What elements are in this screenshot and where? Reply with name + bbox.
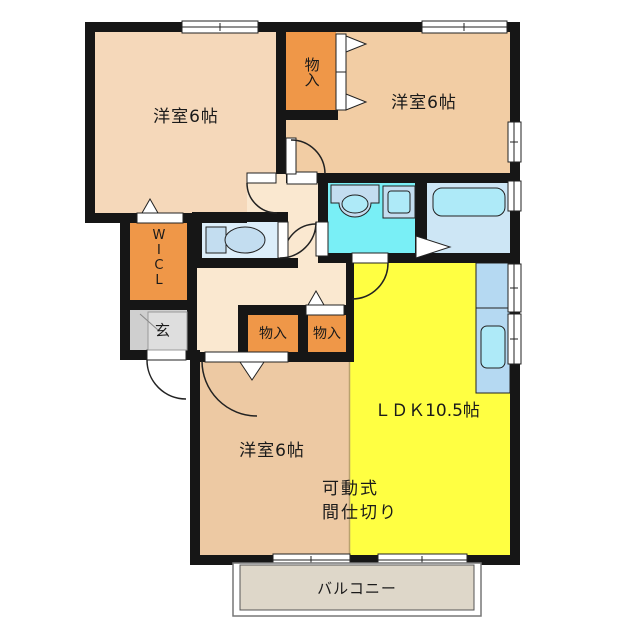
wall-closet-top-bottom xyxy=(286,110,338,120)
label-partition-line1: 可動式 xyxy=(322,480,379,500)
bathtub-icon xyxy=(433,188,505,216)
entrance-door-gap xyxy=(147,350,186,360)
sliding-door-panel xyxy=(336,72,346,110)
wall-room-divider xyxy=(276,22,286,174)
wall-left-upper xyxy=(85,22,95,223)
door-panel xyxy=(278,222,288,258)
door-gap xyxy=(247,173,276,183)
label-closet-hall-left: 物入 xyxy=(259,326,287,342)
wall-mid-horizontal xyxy=(286,173,510,183)
floorplan-drawing xyxy=(0,0,640,640)
floorplan: 洋室6帖 物入 洋室6帖 WICL 玄 物入 物入 洋室6帖 ＬＤＫ10.5帖 … xyxy=(0,0,640,640)
wall-wicl-bottom xyxy=(120,300,197,310)
wall-left-mid xyxy=(120,213,130,360)
window xyxy=(182,21,258,33)
wall-washroom-left xyxy=(318,183,328,225)
vanity-basin-icon xyxy=(342,195,368,213)
door-gap xyxy=(137,213,183,223)
window xyxy=(508,181,521,211)
toilet-tank-icon xyxy=(206,227,226,253)
window xyxy=(508,314,521,364)
wall-ldk-left xyxy=(346,263,354,362)
wall-wicl-right xyxy=(187,213,197,352)
label-closet-hall-right: 物入 xyxy=(313,326,341,342)
window xyxy=(422,21,507,33)
label-entrance: 玄 xyxy=(155,322,171,339)
outside-step-2 xyxy=(95,360,190,555)
label-balcony: バルコニー xyxy=(317,580,397,597)
kitchen-sink-icon xyxy=(481,326,505,368)
door-gap xyxy=(306,305,344,315)
window xyxy=(508,122,521,162)
door-gap xyxy=(205,352,288,362)
door-gap xyxy=(352,253,388,263)
label-wicl: WICL xyxy=(151,228,166,288)
wall-left-lower xyxy=(190,350,200,565)
outside-step-1 xyxy=(95,223,120,360)
door-panel xyxy=(286,138,296,174)
label-ldk: ＬＤＫ10.5帖 xyxy=(374,402,480,422)
wall-closet-row-left xyxy=(238,305,248,352)
label-bedroom-bottom: 洋室6帖 xyxy=(239,442,305,462)
toilet-bowl-icon xyxy=(225,227,265,253)
door-panel xyxy=(316,222,328,256)
label-bedroom-top-left: 洋室6帖 xyxy=(153,108,219,128)
label-partition-line2: 間仕切り xyxy=(322,504,398,524)
window xyxy=(508,264,521,312)
wall-toilet-bottom xyxy=(192,258,298,268)
wall-washroom-bottom xyxy=(318,253,510,263)
label-closet-top: 物入 xyxy=(302,57,319,87)
sliding-door-panel xyxy=(336,34,346,72)
washer-icon xyxy=(388,191,410,213)
label-bedroom-top-right: 洋室6帖 xyxy=(391,94,457,114)
